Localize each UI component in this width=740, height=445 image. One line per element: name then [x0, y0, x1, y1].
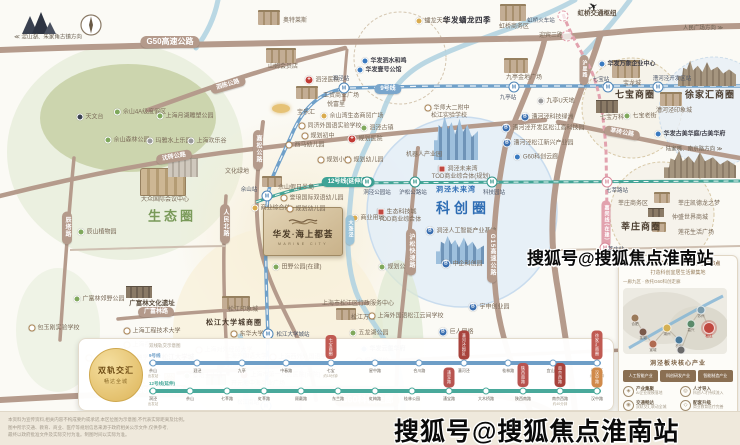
- metro-station-icon: M: [262, 191, 273, 202]
- feature-desc: AI企业规模落地: [636, 391, 662, 396]
- transit-panel: 双轨交汇 畅达全城 双线轨交示意图 9号线佘山出发站泗泾九亭中春路七宝约15分钟…: [78, 338, 614, 411]
- map-pill: G15高速公路: [487, 229, 497, 283]
- project-card: 华发·海上都荟 MARINE CITY: [263, 207, 343, 256]
- g60-feature-items: ◈ 产业集聚 AI企业规模落地◎ 人才导入 科创人才持续流入◉ 交通畅达 双轨交…: [623, 386, 733, 411]
- map-label: 泗泾古镇: [360, 125, 393, 132]
- map-label: 奥特莱斯: [283, 18, 307, 24]
- map-label: 宇申创业园: [468, 303, 509, 312]
- map-label: 仲盛世界商城: [672, 215, 708, 221]
- map-label: 同济外国语实验学校: [298, 123, 361, 130]
- map-label: 九亭U天地: [537, 98, 574, 105]
- metro-station-label: 科技园站: [483, 188, 505, 196]
- park-icon: [156, 113, 163, 120]
- transit-highlight-pill: 南京西路: [555, 363, 566, 387]
- industry-box: 人工智能产业: [623, 370, 658, 382]
- project-logo-icon: [288, 217, 318, 226]
- b-icon: [520, 113, 529, 122]
- yellow-icon: [251, 205, 258, 212]
- yellow-icon: [320, 113, 327, 120]
- sch-icon: [424, 105, 431, 112]
- disclaimer-line1: 本资料为宣传资料,相关内容不构成要约或承诺,本区位图为示意图,不代表实际距离及比…: [8, 417, 187, 422]
- hosp-icon: [304, 76, 313, 85]
- map-label: 上海欢乐谷: [187, 138, 226, 145]
- g60-tags: 一廊九区 · 依托G60科创走廊: [623, 279, 733, 285]
- transit-station-dot: [557, 388, 564, 395]
- building-icon: [660, 92, 682, 106]
- map-label: 悦富里: [327, 102, 345, 108]
- map-pill: 9号线: [374, 84, 401, 94]
- map-label: 华师大二附中: [424, 105, 469, 112]
- map-pill: 嘉松公路: [253, 130, 263, 170]
- transit-line-name: 9号线: [149, 353, 161, 359]
- building-icon: [258, 10, 280, 25]
- map-label: 华发泗水和鸣: [361, 58, 406, 65]
- map-label: 玛雅水上乐园: [146, 138, 191, 145]
- transit-station-label: 虹梅路: [369, 396, 381, 402]
- g60-city-node: [663, 323, 672, 332]
- g60-industry-boxes: 人工智能产业科创研发产业智能制造产业: [623, 370, 733, 382]
- transit-highlight-pill: 七宝商圈: [325, 335, 336, 359]
- g60-city-node: [649, 339, 658, 348]
- map-label: 迎宾三路: [539, 33, 563, 39]
- metro-station-icon: M: [362, 177, 373, 188]
- transit-station-label: 虹莘路: [258, 396, 270, 402]
- transit-station-dot: [187, 388, 194, 395]
- map-label: 机器人产业园: [406, 152, 442, 158]
- g60-city-label: 松江: [706, 334, 713, 339]
- transit-station-dot: [594, 388, 601, 395]
- feature-icon: ◇: [680, 400, 691, 411]
- map-label: 规划幼儿园: [286, 206, 325, 213]
- map-label: 大众国际会议中心: [141, 197, 189, 203]
- hosp-icon: [347, 135, 356, 144]
- map-label: 虹桥商务区: [499, 24, 529, 30]
- map-label: 莘庄商务区: [618, 201, 648, 207]
- g60-city-node: [631, 313, 640, 322]
- g60-city-node: [687, 319, 696, 328]
- disclaimer-line3: 最终以政府批准文件及实际交付为准。制图时间以实际为准。: [8, 432, 130, 437]
- g60-corridor-map: 合肥芜湖宣城湖州杭州金华嘉兴苏州松江: [623, 288, 727, 354]
- industry-box: 科创研发产业: [660, 370, 695, 382]
- map-label: 洞泾未来湾: [436, 187, 476, 194]
- feature-item: ◇ 配套升级 商业教育医疗完善: [680, 400, 733, 411]
- park-icon: [349, 330, 356, 337]
- map-label: 广富林郊野公园: [73, 296, 124, 303]
- transit-station-label: 汉中路: [591, 396, 603, 402]
- bluedot-icon: [514, 154, 521, 161]
- transit-station-time: 出发站: [148, 374, 159, 379]
- map-pill: 广富林路: [138, 307, 174, 317]
- map-label: 上海工程技术大学: [123, 328, 180, 335]
- transit-station-label: 泗泾: [193, 368, 201, 374]
- sch-icon: [317, 157, 324, 164]
- transit-station-dot: [224, 388, 231, 395]
- map-pill: G50高速公路: [140, 36, 199, 48]
- red-icon: [438, 166, 445, 173]
- transit-station-time: 约40分钟: [553, 402, 567, 407]
- map-label: TOD商业综合体(规划): [432, 174, 491, 180]
- map-label: 生态科技城: [377, 209, 416, 216]
- transit-station-dot: [594, 360, 601, 367]
- map-label: 漕河泾松江新兴产业园: [502, 139, 573, 148]
- feature-item: ◎ 人才导入 科创人才持续流入: [680, 386, 733, 397]
- transit-station-label: 漕河泾: [458, 368, 470, 374]
- bluedot-icon: [361, 58, 368, 65]
- building-icon: [296, 86, 318, 99]
- building-icon: [266, 48, 296, 63]
- metro-station-label: 七宝站: [593, 75, 610, 83]
- g60-city-label: 宣城: [650, 348, 657, 353]
- bluedot-icon: [598, 61, 605, 68]
- transit-badge: 双轨交汇 畅达全城: [89, 348, 143, 402]
- map-label: 漕河泾开发区松江高科技园: [501, 124, 584, 133]
- transit-station-label: 大木桥路: [478, 396, 494, 402]
- map-label: 规划初中: [301, 133, 334, 140]
- metro-station-label: 洞泾公园站: [363, 188, 391, 196]
- transit-station-dot: [150, 360, 157, 367]
- transit-station-label: 合川路: [413, 368, 425, 374]
- metro-station-icon: M: [410, 177, 421, 188]
- sch-icon: [230, 331, 237, 338]
- map-label: 生态圈: [148, 210, 196, 223]
- transit-station-dot: [372, 388, 379, 395]
- map-label: 宝乐汇: [297, 110, 315, 116]
- b-icon: [468, 303, 477, 312]
- b-icon: [441, 260, 450, 269]
- transit-highlight-pill: 陕西南路: [518, 363, 529, 387]
- map-label: TOD商业综合体: [379, 217, 422, 223]
- map-label: 上海市松江区行政服务中心: [322, 301, 394, 307]
- g60-city-label: 湖州: [664, 332, 671, 337]
- metro-station-label: 七莘路站: [606, 186, 628, 194]
- g60-subtitle: 打造科创宜居生活聚集地: [623, 269, 733, 276]
- g60-city-label: 芜湖: [640, 336, 647, 341]
- transit-badge-title: 双轨交汇: [98, 365, 134, 376]
- map-label: 五龙湖公园: [349, 330, 388, 337]
- sch-icon: [344, 157, 351, 164]
- g60-city-label: 合肥: [632, 322, 639, 327]
- metro-station-label: 漕河泾开发区站: [653, 74, 692, 82]
- map-label: 陆家嘴、南京路方向 ≫: [666, 147, 723, 153]
- map-label: 工贸商业广场: [323, 93, 359, 99]
- sch-icon: [368, 313, 375, 320]
- park-icon: [77, 229, 84, 236]
- feature-icon: ◈: [623, 386, 634, 397]
- g60-city-node: [675, 335, 684, 344]
- transit-station-label: 东兰路: [332, 396, 344, 402]
- building-icon: [500, 4, 526, 21]
- map-label: 上海外国语松江云间学校: [368, 313, 443, 320]
- map-label: ≪ 淀山湖、朱家角古镇方向: [14, 35, 82, 41]
- sch-icon: [280, 195, 287, 202]
- map-label: 中企科创园: [441, 260, 482, 269]
- transit-station-label: 顾戴路: [295, 396, 307, 402]
- map-pill: 沪星路: [580, 55, 589, 85]
- feature-icon: ◉: [623, 400, 634, 411]
- compass-icon: [80, 14, 102, 36]
- map-label: 辰山植物园: [77, 229, 116, 236]
- map-label: 商业综合体: [251, 205, 290, 212]
- bluedot-icon: [655, 131, 662, 138]
- metro-station-label: 佘山站: [241, 185, 258, 193]
- transit-station-label: 陕西南路: [515, 396, 531, 402]
- map-pill: 人民北路: [220, 204, 230, 244]
- transit-station-label: 桂林公园: [404, 396, 420, 402]
- map-label: 科创圈: [436, 201, 490, 215]
- building-icon: [596, 100, 618, 113]
- map-label: 华发蟠龙四季: [443, 16, 491, 24]
- park-icon: [273, 264, 280, 271]
- metro-station-icon: M: [339, 83, 350, 94]
- metro-station-icon: M: [603, 82, 614, 93]
- g60-city-node: [639, 327, 648, 336]
- map-pill: 大涨泾: [346, 215, 355, 245]
- map-label: 松江大学城商圈: [206, 320, 262, 327]
- map-label: 包玉刚实验学校: [28, 325, 79, 332]
- yellow-icon: [415, 18, 422, 25]
- transit-station-dot: [298, 388, 305, 395]
- gray-icon: [146, 138, 153, 145]
- map-label: 九亭金地广场: [506, 75, 542, 81]
- metro-station-icon: [562, 31, 573, 42]
- sch-icon: [286, 206, 293, 213]
- building-icon: [504, 58, 528, 73]
- transit-station-dot: [416, 360, 423, 367]
- b-icon: [425, 227, 434, 236]
- g60-core-title: 洞泾板块核心产业: [623, 358, 733, 367]
- map-label: 七宝商圈: [615, 91, 655, 100]
- map-label: 人民广场方向 ≫: [683, 26, 723, 32]
- map-label: 佘山湾生态商贸广场: [320, 113, 383, 120]
- b-icon: [438, 328, 447, 337]
- map-label: 徐家汇商圈: [685, 91, 735, 100]
- metro-station-label: 松江大学城站: [276, 330, 309, 338]
- gray-icon: [537, 98, 544, 105]
- park-icon: [378, 264, 385, 271]
- g60-city-node: [703, 322, 715, 334]
- transit-station-dot: [549, 360, 556, 367]
- sch-icon: [285, 142, 292, 149]
- sch-icon: [123, 328, 130, 335]
- map-label: 莲花生活广场: [678, 230, 714, 236]
- b-icon: [502, 139, 511, 148]
- map-label: 洞泾人工智能产业基地: [425, 227, 496, 236]
- g60-city-node: [697, 305, 706, 314]
- map-label: 东华大学: [230, 331, 263, 338]
- feature-desc: 商业教育医疗完善: [693, 405, 723, 410]
- map-label: 誉琅国际双语幼儿园: [280, 195, 343, 202]
- building-icon: [648, 208, 664, 217]
- map-label: 洞泾未来湾: [438, 166, 477, 173]
- transit-station-dot: [150, 388, 157, 395]
- feature-desc: 科创人才持续流入: [693, 391, 723, 396]
- g60-tag1: 一廊九区: [623, 279, 641, 284]
- transit-station-label: 九亭: [238, 368, 246, 374]
- transit-station-time: 出发站: [148, 402, 159, 407]
- map-label: 文化绿地: [225, 169, 249, 175]
- transit-station-dot: [335, 388, 342, 395]
- transit-highlight-pill: 徐家汇商圈: [592, 331, 603, 360]
- feature-item: ◉ 交通畅达 双轨交汇联动全城: [623, 400, 676, 411]
- b-icon: [501, 124, 510, 133]
- feature-desc: 双轨交汇联动全城: [636, 405, 666, 410]
- map-label: 七宝老街: [623, 113, 656, 120]
- transit-station-label: 七莘路: [221, 396, 233, 402]
- map-label: 天文台: [76, 114, 103, 121]
- g60-city-label: 嘉兴: [688, 328, 695, 333]
- transit-highlight-pill: 漕宝路: [444, 368, 455, 388]
- map-label: 漕河泾印象城: [656, 108, 692, 114]
- transit-highlight-pill: 漕河泾园区: [458, 331, 469, 360]
- sch-icon: [301, 133, 308, 140]
- sch-icon: [28, 325, 35, 332]
- map-label: 山姆会员店: [268, 64, 298, 70]
- project-name-en: MARINE CITY: [278, 242, 328, 246]
- feature-icon: ◎: [680, 386, 691, 397]
- map-label: 华发万象企业中心: [598, 61, 655, 68]
- park-icon: [114, 109, 121, 116]
- map-pill: 辰塔路: [62, 212, 72, 245]
- map-label: 虹桥交通枢纽: [578, 11, 617, 18]
- park-icon: [623, 113, 630, 120]
- transit-station-dot: [283, 360, 290, 367]
- watermark-mid: 搜狐号@搜狐焦点淮南站: [527, 244, 714, 269]
- building-icon: [126, 286, 152, 298]
- map-label: 莘庄凯德龙之梦: [678, 201, 720, 207]
- transit-station-dot: [327, 360, 334, 367]
- industry-box: 智能制造产业: [698, 370, 733, 382]
- transit-station-label: 桂林路: [502, 368, 514, 374]
- map-label: 松江实验学校: [431, 113, 467, 119]
- map-label: 上海月湖雕塑公园: [156, 113, 213, 120]
- map-label: G60科创云廊: [514, 154, 558, 161]
- project-name: 华发·海上都荟: [273, 228, 334, 240]
- transit-station-dot: [505, 360, 512, 367]
- metro-station-label: 沪松公路站: [399, 188, 427, 196]
- location-map: ✈ 华发·海上都荟 MARINE CITY 双轨交汇 畅达全城 双线轨交示意图 …: [0, 0, 740, 445]
- transit-station-dot: [372, 360, 379, 367]
- map-pill: 沪松快速路: [406, 229, 416, 276]
- watermark-bottom: 搜狐号@搜狐焦点淮南站: [394, 412, 679, 445]
- bluedot-icon: [356, 67, 363, 74]
- lake-mountains-icon: [20, 10, 56, 36]
- dark-icon: [76, 114, 83, 121]
- metro-station-label: 虹桥火车站: [527, 16, 555, 24]
- map-label: 华发壹号公馆: [356, 67, 401, 74]
- transit-station-label: 漕宝路: [443, 396, 455, 402]
- transit-station-label: 星中路: [369, 368, 381, 374]
- building-icon: [272, 104, 290, 113]
- metro-station-label: 九亭站: [500, 93, 517, 101]
- g60-city-label: 苏州: [698, 314, 705, 319]
- transit-badge-sub: 畅达全城: [104, 378, 128, 385]
- map-label: 田野公园(在建): [273, 264, 322, 271]
- park-icon: [360, 125, 367, 132]
- transit-station-dot: [520, 388, 527, 395]
- g60-tag2: 依托G60科创走廊: [645, 279, 681, 284]
- transit-line-name: 12号线(延伸): [149, 381, 175, 387]
- disclaimer-line2: 图中所示交通、教育、商业、医疗等规划信息来源于政府相关公示文件,仅供参考,: [8, 425, 168, 430]
- metro-station-icon: [558, 11, 569, 22]
- map-label: 七宝万科: [600, 115, 624, 121]
- transit-highlight-pill: 汉中路: [592, 368, 603, 388]
- park-icon: [73, 296, 80, 303]
- map-label: 西马幼儿园: [285, 142, 324, 149]
- g60-city-node: [677, 345, 686, 354]
- map-label: 华发古美华庭/古美华府: [655, 131, 726, 138]
- gray-icon: [187, 138, 194, 145]
- map-label: 松江印象城: [228, 307, 258, 313]
- park-icon: [104, 137, 111, 144]
- map-pill: 嘉闵线(在建): [602, 200, 611, 247]
- transit-panel-note: 双线轨交示意图: [149, 343, 181, 349]
- map-label: 宝龙城: [623, 81, 641, 87]
- transit-station-dot: [238, 360, 245, 367]
- red-icon: [377, 209, 384, 216]
- metro-station-icon: M: [509, 82, 520, 93]
- transit-station-dot: [460, 360, 467, 367]
- map-label: 佘山假日半岛: [278, 185, 314, 191]
- metro-station-label: 泗泾站: [333, 74, 350, 82]
- metro-station-icon: M: [653, 82, 664, 93]
- feature-item: ◈ 产业集聚 AI企业规模落地: [623, 386, 676, 397]
- transit-station-time: 约15分钟: [323, 374, 337, 379]
- transit-station-dot: [409, 388, 416, 395]
- map-label: 漕河泾科技绿洲: [520, 113, 573, 122]
- map-label: 佘山森林公园: [104, 137, 149, 144]
- transit-station-label: 中春路: [280, 368, 292, 374]
- disclaimer-text: 本资料为宣传资料,相关内容不构成要约或承诺,本区位图为示意图,不代表实际距离及比…: [8, 416, 388, 439]
- transit-station-dot: [446, 388, 453, 395]
- sch-icon: [298, 123, 305, 130]
- transit-station-dot: [194, 360, 201, 367]
- map-label: 规划医院: [347, 135, 382, 144]
- building-icon: [654, 192, 670, 203]
- map-label: 莘庄商圈: [621, 223, 661, 232]
- map-label: 规划幼儿园: [344, 157, 383, 164]
- metro-station-icon: M: [487, 177, 498, 188]
- transit-station-dot: [483, 388, 490, 395]
- transit-station-dot: [261, 388, 268, 395]
- transit-station-label: 佘山: [186, 396, 194, 402]
